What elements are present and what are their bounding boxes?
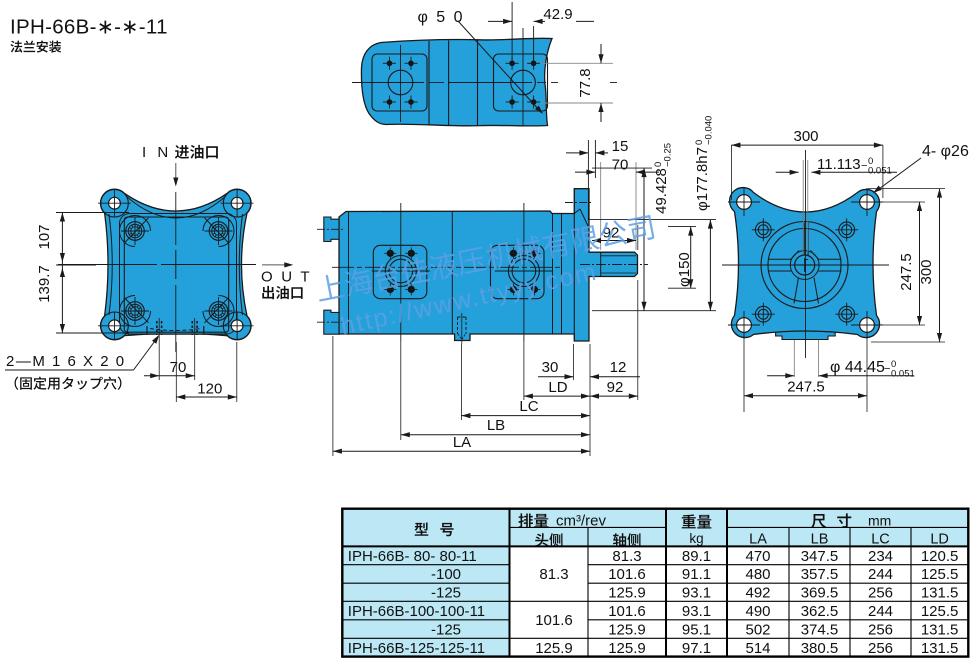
- svg-text:125.9: 125.9: [535, 640, 573, 657]
- svg-text:256: 256: [868, 621, 893, 638]
- svg-text:kg: kg: [689, 531, 703, 546]
- svg-text:4- φ26: 4- φ26: [922, 143, 969, 160]
- svg-text:101.6: 101.6: [608, 603, 646, 620]
- svg-text:LD: LD: [930, 532, 949, 548]
- svg-text:LB: LB: [487, 417, 505, 434]
- svg-text:−0.25: −0.25: [663, 143, 674, 167]
- svg-text:120: 120: [197, 381, 222, 398]
- svg-text:131.5: 131.5: [921, 640, 959, 657]
- svg-text:-100: -100: [431, 566, 461, 583]
- svg-text:0.051: 0.051: [868, 166, 892, 177]
- svg-text:IPH-66B- 80- 80-11: IPH-66B- 80- 80-11: [348, 548, 477, 565]
- svg-text:502: 502: [745, 621, 770, 638]
- svg-text:247.5: 247.5: [787, 379, 825, 396]
- svg-text:120.5: 120.5: [921, 548, 959, 565]
- svg-text:514: 514: [745, 640, 770, 657]
- svg-text:−: −: [884, 363, 890, 375]
- svg-text:O U T: O U T: [261, 269, 312, 286]
- svg-text:11.113: 11.113: [817, 156, 861, 173]
- svg-text:101.6: 101.6: [535, 612, 573, 629]
- svg-text:15: 15: [612, 138, 629, 155]
- svg-text:LB: LB: [811, 532, 829, 548]
- svg-text:125.9: 125.9: [608, 621, 646, 638]
- svg-text:LA: LA: [453, 434, 471, 451]
- svg-text:LC: LC: [519, 398, 538, 415]
- svg-text:77.8: 77.8: [577, 68, 594, 97]
- svg-text:139.7: 139.7: [36, 265, 53, 303]
- svg-text:93.1: 93.1: [682, 585, 711, 602]
- svg-text:374.5: 374.5: [801, 621, 839, 638]
- svg-text:492: 492: [745, 585, 770, 602]
- svg-text:131.5: 131.5: [921, 621, 959, 638]
- svg-text:IPH-66B-∗-∗-11: IPH-66B-∗-∗-11: [10, 16, 168, 39]
- svg-text:125.9: 125.9: [608, 585, 646, 602]
- svg-text:70: 70: [170, 359, 187, 376]
- svg-text:49.428: 49.428: [653, 168, 670, 214]
- svg-text:IPH-66B-125-125-11: IPH-66B-125-125-11: [348, 640, 485, 657]
- svg-text:97.1: 97.1: [682, 640, 711, 657]
- svg-text:101.6: 101.6: [608, 566, 646, 583]
- svg-text:125.5: 125.5: [921, 603, 959, 620]
- svg-text:357.5: 357.5: [801, 566, 839, 583]
- svg-text:LA: LA: [749, 532, 767, 548]
- svg-text:LC: LC: [871, 532, 890, 548]
- svg-text:369.5: 369.5: [801, 585, 839, 602]
- svg-text:91.1: 91.1: [682, 566, 711, 583]
- svg-text:470: 470: [745, 548, 770, 565]
- svg-text:LD: LD: [548, 379, 567, 396]
- svg-text:362.5: 362.5: [801, 603, 839, 620]
- svg-text:244: 244: [868, 566, 893, 583]
- svg-text:244: 244: [868, 603, 893, 620]
- svg-text:380.5: 380.5: [801, 640, 839, 657]
- svg-text:I N: I N: [142, 144, 172, 161]
- svg-text:234: 234: [868, 548, 893, 565]
- svg-text:42.9: 42.9: [543, 6, 572, 23]
- svg-text:φ177.8h7: φ177.8h7: [694, 147, 711, 211]
- svg-text:256: 256: [868, 585, 893, 602]
- svg-text:81.3: 81.3: [612, 548, 641, 565]
- svg-text:IPH-66B-100-100-11: IPH-66B-100-100-11: [348, 603, 485, 620]
- svg-text:300: 300: [918, 259, 935, 284]
- svg-text:0.051: 0.051: [891, 369, 915, 380]
- svg-text:93.1: 93.1: [682, 603, 711, 620]
- svg-text:490: 490: [745, 603, 770, 620]
- svg-text:12: 12: [610, 359, 627, 376]
- svg-text:φ 5 0: φ 5 0: [417, 9, 464, 26]
- svg-text:95.1: 95.1: [682, 621, 711, 638]
- svg-text:107: 107: [36, 224, 53, 249]
- svg-text:−0.040: −0.040: [704, 116, 715, 145]
- svg-text:2—M 1 6 X 2 0: 2—M 1 6 X 2 0: [6, 353, 126, 370]
- svg-text:247.5: 247.5: [898, 253, 915, 291]
- svg-text:125.5: 125.5: [921, 566, 959, 583]
- svg-text:−: −: [861, 160, 867, 172]
- svg-text:-125: -125: [431, 621, 461, 638]
- svg-text:256: 256: [868, 640, 893, 657]
- svg-text:131.5: 131.5: [921, 585, 959, 602]
- svg-text:-125: -125: [431, 585, 461, 602]
- svg-text:480: 480: [745, 566, 770, 583]
- svg-text:89.1: 89.1: [682, 548, 711, 565]
- svg-text:30: 30: [542, 359, 559, 376]
- svg-text:mm: mm: [868, 513, 891, 529]
- svg-text:81.3: 81.3: [539, 566, 568, 583]
- svg-text:300: 300: [793, 128, 818, 145]
- svg-text:125.9: 125.9: [608, 640, 646, 657]
- svg-text:70: 70: [612, 157, 629, 174]
- svg-text:92: 92: [607, 379, 624, 396]
- svg-text:φ 44.45: φ 44.45: [830, 359, 885, 376]
- svg-text:347.5: 347.5: [801, 548, 839, 565]
